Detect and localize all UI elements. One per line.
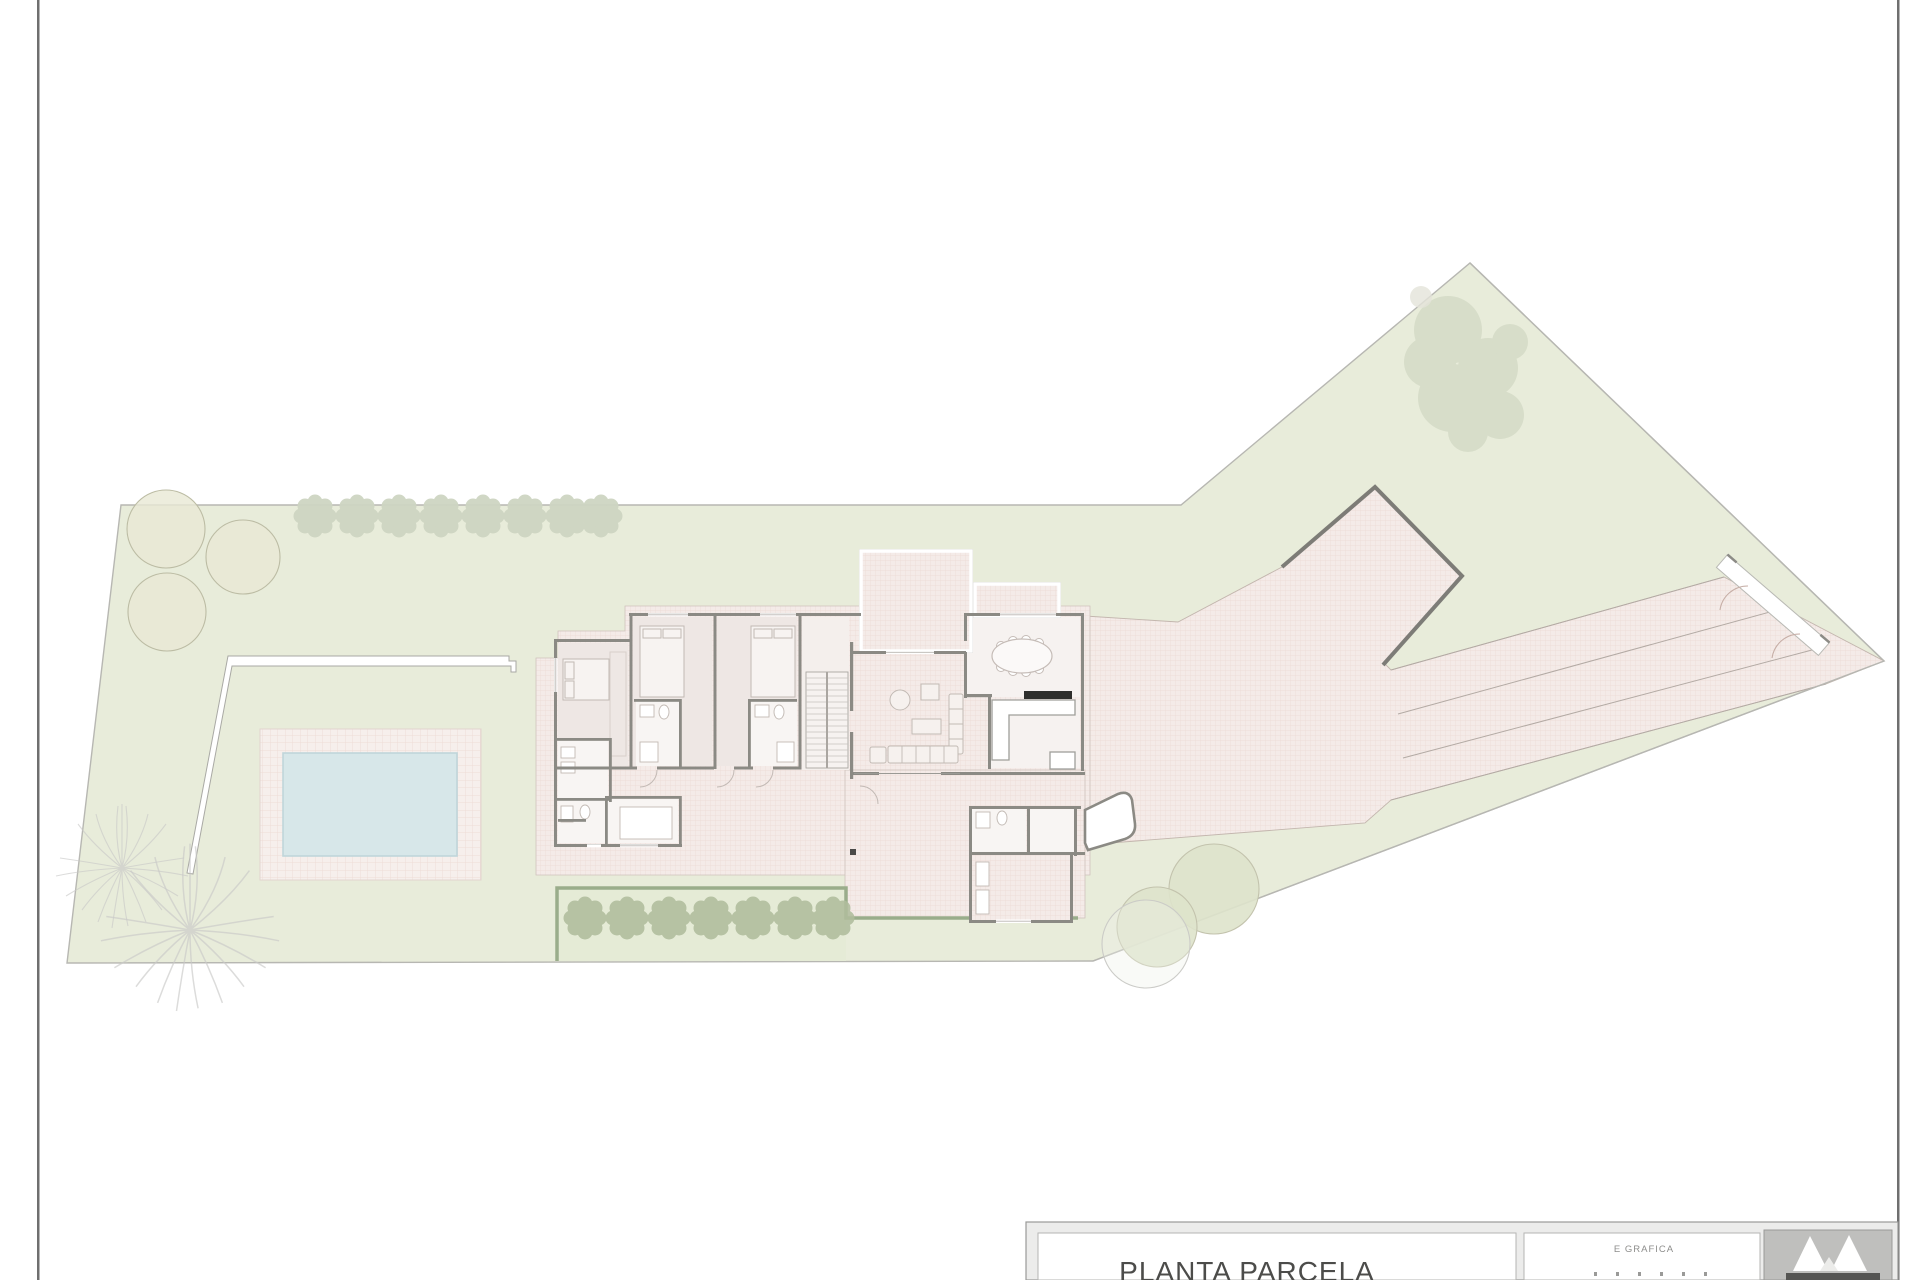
- svg-text:PLANTA PARCELA: PLANTA PARCELA: [1119, 1256, 1375, 1280]
- svg-text:E GRAFICA: E GRAFICA: [1614, 1244, 1674, 1255]
